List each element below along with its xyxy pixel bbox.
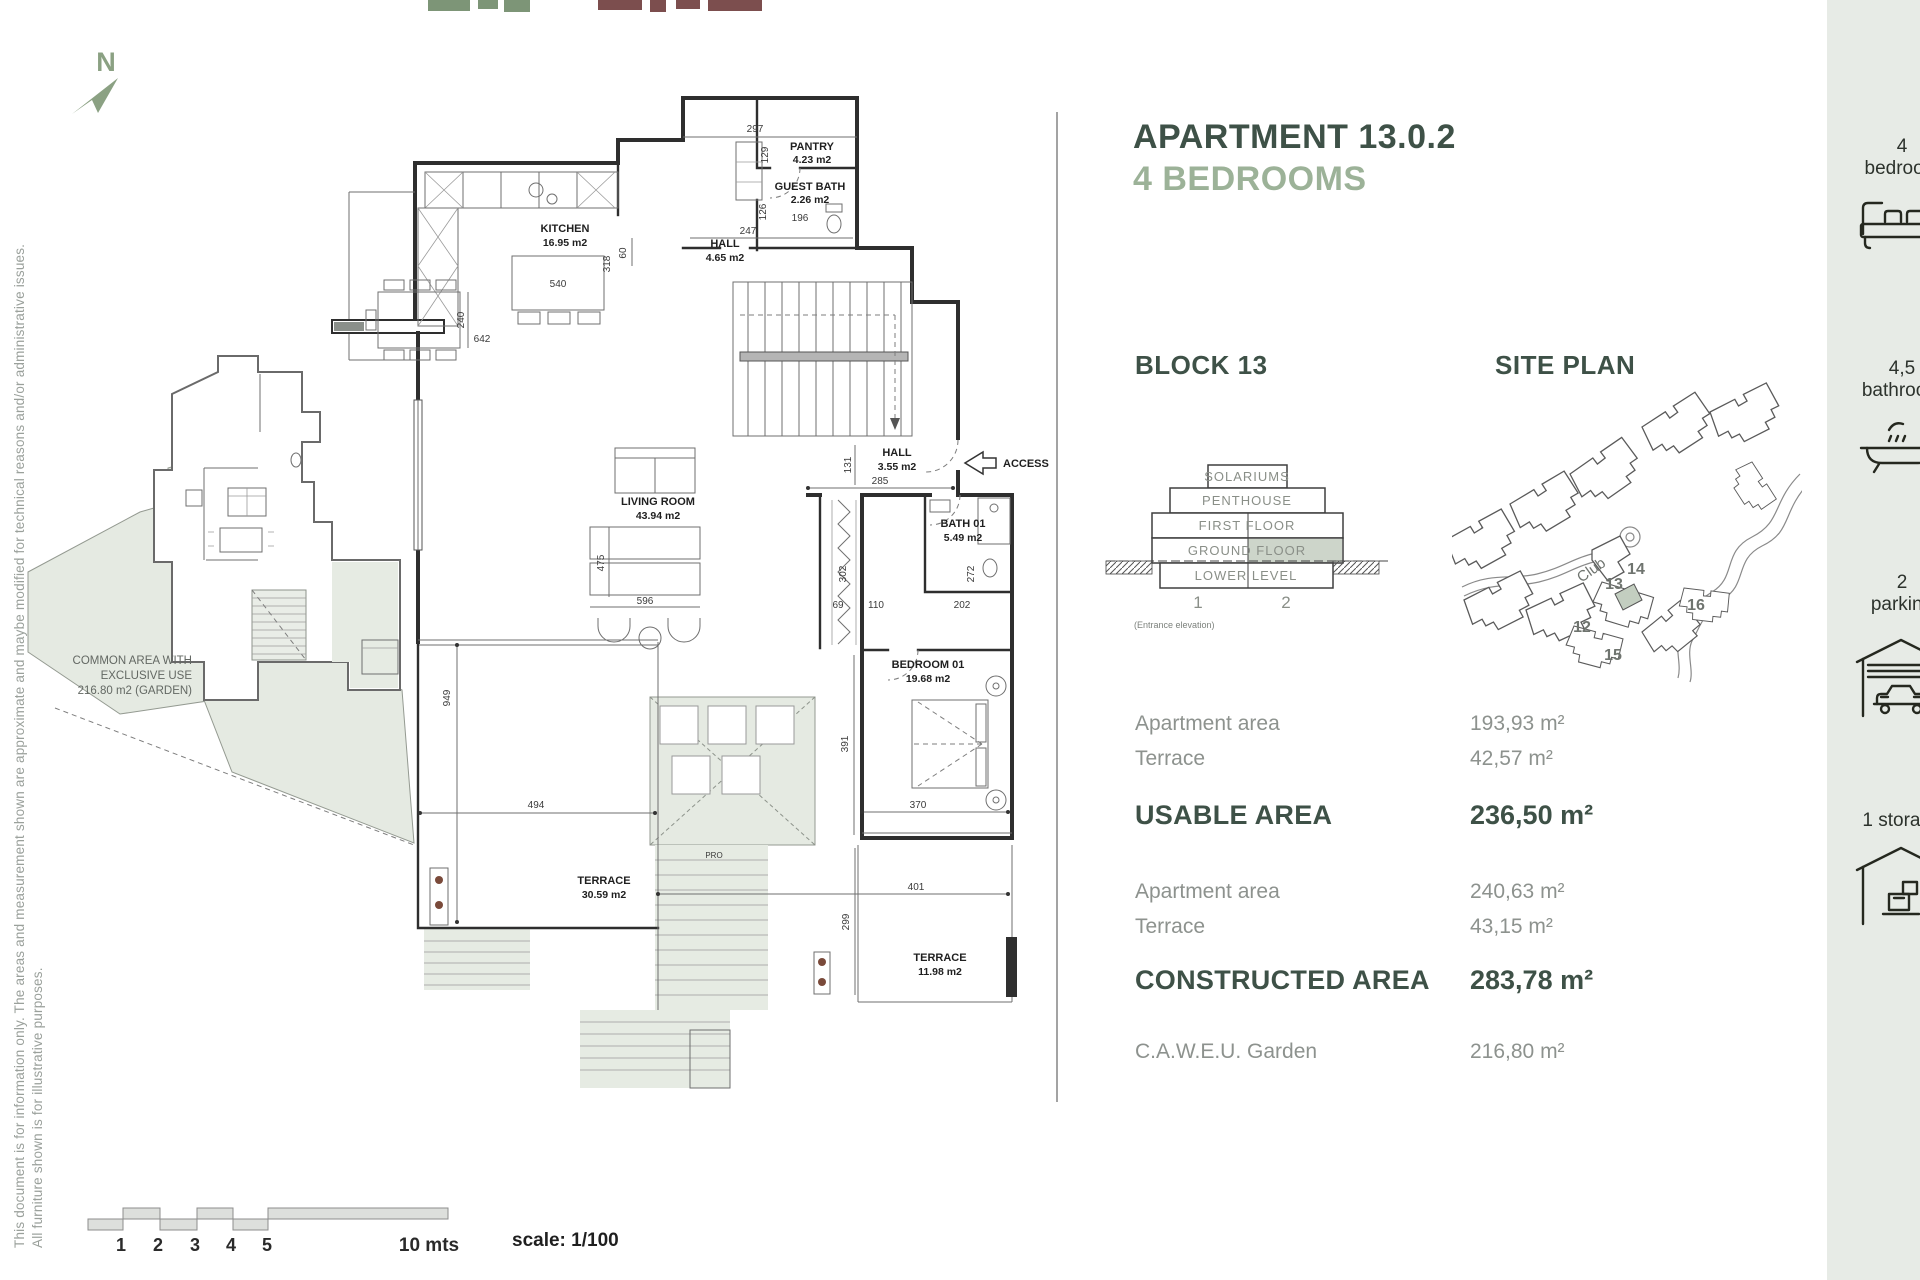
svg-text:131: 131 [843,456,854,473]
siteplan-heading: SITE PLAN [1495,350,1635,381]
svg-text:318: 318 [602,255,613,272]
svg-text:5.49 m2: 5.49 m2 [944,532,983,544]
parking-count: 2 [1842,572,1920,594]
parking-garage-icon [1853,630,1920,722]
scale-tick: 5 [262,1235,272,1255]
svg-text:2.26 m2: 2.26 m2 [791,194,830,206]
scale-bar: 1 2 3 4 5 10 mts [84,1203,584,1263]
interior-stairs [733,282,912,436]
svg-text:196: 196 [792,213,809,224]
svg-text:247: 247 [740,226,757,237]
bed [912,676,1006,810]
svg-text:285: 285 [872,476,889,487]
svg-text:299: 299 [841,913,852,930]
pergola-grid [650,697,815,845]
svg-text:272: 272 [966,565,977,582]
constructed-total-value: 283,78 m² [1470,965,1593,996]
usable-row-value: 193,93 m² [1470,712,1565,736]
constructed-row-value: 43,15 m² [1470,915,1553,939]
svg-text:596: 596 [637,596,654,607]
floor-plan: COMMON AREA WITH EXCLUSIVE USE 216.80 m2… [0,0,1060,1120]
room-label: TERRACE [577,875,630,887]
block-number: 14 [1627,561,1645,578]
svg-text:69: 69 [832,600,844,611]
bedroom-count: 4 [1842,136,1920,158]
constructed-row-label: Terrace [1135,915,1205,939]
svg-text:370: 370 [910,800,927,811]
svg-text:949: 949 [442,689,453,706]
svg-text:PENTHOUSE: PENTHOUSE [1202,493,1292,508]
elevation-caption: (Entrance elevation) [1134,620,1215,630]
room-label: LIVING ROOM [621,496,695,508]
site-plan-map: 12 13 14 15 16 Club [1452,382,1802,702]
svg-text:GROUND FLOOR: GROUND FLOOR [1188,543,1306,558]
usable-row-label: Terrace [1135,747,1205,771]
svg-text:SOLARIUMS: SOLARIUMS [1204,469,1290,484]
svg-text:4.23 m2: 4.23 m2 [793,154,832,166]
access-arrow-icon [965,452,996,474]
stair-annotation: PRO [705,851,722,860]
block-number: 16 [1687,597,1705,614]
block-heading: BLOCK 13 [1135,350,1268,381]
scale-ratio-label: scale: 1/100 [512,1230,619,1252]
amenity-sidebar: 4 bedroom 4,5 bathroom 2 parking 1 stora… [1827,0,1920,1280]
constructed-total-label: CONSTRUCTED AREA [1135,965,1430,996]
garden-row-value: 216,80 m² [1470,1040,1565,1064]
svg-text:110: 110 [868,600,884,611]
svg-text:475: 475 [596,554,607,571]
common-area-label-2: EXCLUSIVE USE [101,670,193,682]
room-label: HALL [710,238,740,250]
usable-row-value: 42,57 m² [1470,747,1553,771]
svg-text:60: 60 [618,247,629,259]
room-label: BEDROOM 01 [892,659,965,671]
svg-text:202: 202 [954,600,971,611]
bathroom-label: bathroom [1842,380,1920,402]
svg-text:11.98 m2: 11.98 m2 [918,966,962,978]
storage-count: 1 storage [1842,810,1920,832]
usable-total-value: 236,50 m² [1470,800,1593,831]
bath-icon [1853,414,1920,480]
block-number: 13 [1605,576,1623,593]
scale-tick: 2 [153,1235,163,1255]
constructed-row-label: Apartment area [1135,880,1280,904]
room-label: TERRACE [913,952,966,964]
svg-text:LOWER LEVEL: LOWER LEVEL [1195,568,1298,583]
common-area-label-3: 216.80 m2 (GARDEN) [78,685,193,697]
svg-text:4.65 m2: 4.65 m2 [706,252,745,264]
constructed-row-value: 240,63 m² [1470,880,1565,904]
bed-icon [1853,196,1920,258]
svg-text:30.59 m2: 30.59 m2 [582,889,627,901]
svg-text:297: 297 [747,124,764,135]
page-subtitle: 4 BEDROOMS [1133,160,1367,199]
svg-text:129: 129 [760,146,771,163]
svg-text:302: 302 [838,565,849,582]
scale-tick: 4 [226,1235,236,1255]
floorplan-brochure-page: { "page": { "disclaimer_line1": "This do… [0,0,1920,1280]
bathroom-count: 4,5 [1842,358,1920,380]
parking-label: parking [1842,594,1920,616]
entrance-column-1: 1 [1193,593,1202,612]
svg-text:391: 391 [840,735,851,752]
svg-text:16.95 m2: 16.95 m2 [543,237,588,249]
entrance-column-2: 2 [1281,593,1290,612]
mini-plan [154,356,400,700]
bedroom-label: bedroom [1842,158,1920,180]
storage-icon [1853,840,1920,930]
block-number: 15 [1604,647,1622,664]
scale-length-label: 10 mts [399,1235,459,1256]
svg-text:494: 494 [528,800,545,811]
svg-text:43.94 m2: 43.94 m2 [636,510,681,522]
svg-text:401: 401 [908,882,925,893]
kitchen-counters [418,172,618,326]
room-label: KITCHEN [541,223,590,235]
room-label: BATH 01 [940,518,985,530]
svg-text:126: 126 [758,203,769,220]
section-divider [1056,112,1058,1102]
svg-text:19.68 m2: 19.68 m2 [906,673,951,685]
site-buildings [1452,382,1782,680]
common-area-label-1: COMMON AREA WITH [73,655,192,667]
room-label: GUEST BATH [775,181,846,193]
room-label: PANTRY [790,141,835,153]
access-label: ACCESS [1003,458,1049,470]
svg-text:540: 540 [550,279,567,290]
page-title: APARTMENT 13.0.2 [1133,118,1456,157]
room-label: HALL [882,447,912,459]
usable-row-label: Apartment area [1135,712,1280,736]
svg-text:FIRST FLOOR: FIRST FLOOR [1199,518,1296,533]
svg-text:240: 240 [456,311,467,328]
usable-total-label: USABLE AREA [1135,800,1332,831]
entrance-elevation-diagram: SOLARIUMS PENTHOUSE FIRST FLOOR GROUND F… [1098,448,1458,648]
block-number: 12 [1573,619,1591,636]
scale-tick: 3 [190,1235,200,1255]
garden-row-label: C.A.W.E.U. Garden [1135,1040,1317,1064]
scale-tick: 1 [116,1235,126,1255]
svg-text:642: 642 [474,334,491,345]
living-room-furniture [590,448,700,649]
svg-text:3.55 m2: 3.55 m2 [878,461,917,473]
